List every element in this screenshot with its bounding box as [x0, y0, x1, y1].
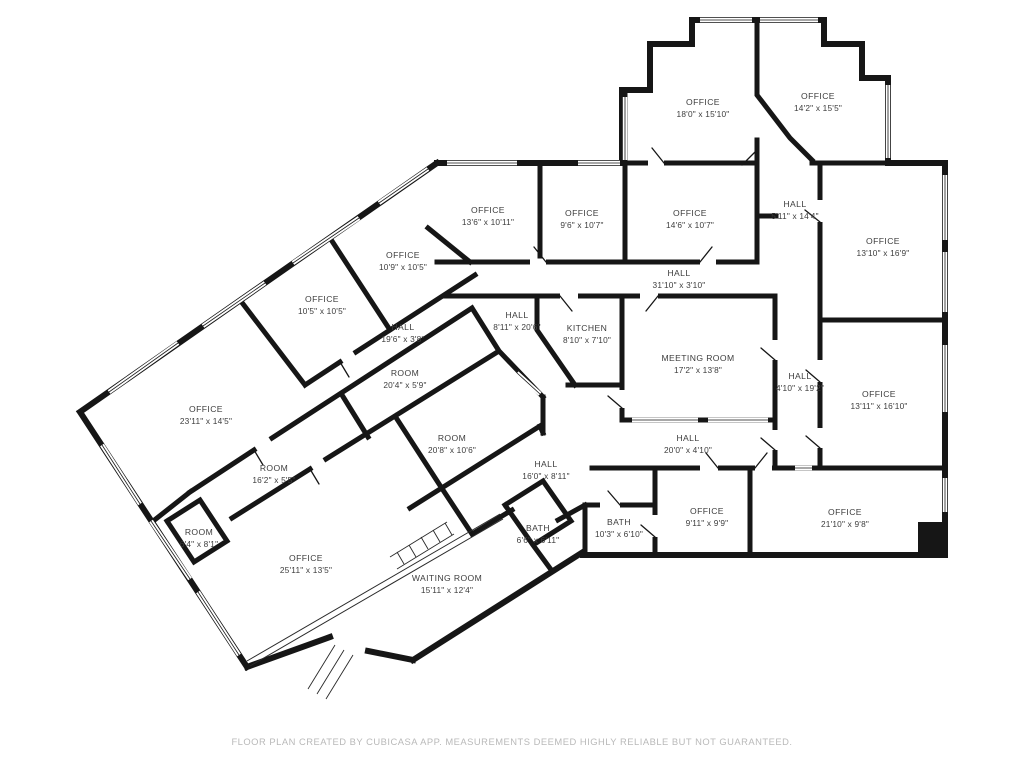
room-dimensions: 18'0" x 15'10": [677, 109, 730, 119]
room-dimensions: 17'2" x 13'8": [674, 365, 722, 375]
room-label: ROOM: [260, 463, 288, 473]
room-label: OFFICE: [690, 506, 724, 516]
room-dimensions: 21'10" x 9'8": [821, 519, 869, 529]
room-label: OFFICE: [305, 294, 339, 304]
room-label: OFFICE: [565, 208, 599, 218]
room-dimensions: 23'11" x 14'5": [180, 416, 232, 426]
room-dimensions: 13'11" x 16'10": [850, 401, 907, 411]
room-label: OFFICE: [386, 250, 420, 260]
room-label: KITCHEN: [567, 323, 608, 333]
room-label: HALL: [505, 310, 528, 320]
room-dimensions: 14'2" x 15'5": [794, 103, 842, 113]
room-label: WAITING ROOM: [412, 573, 482, 583]
room-label: OFFICE: [862, 389, 896, 399]
solid-wall-block: [918, 522, 945, 555]
room-dimensions: 10'9" x 10'5": [379, 262, 427, 272]
room-label: MEETING ROOM: [661, 353, 734, 363]
room-label: OFFICE: [471, 205, 505, 215]
room-label: ROOM: [391, 368, 419, 378]
room-dimensions: 16'0" x 8'11": [522, 471, 570, 481]
room-dimensions: 31'10" x 3'10": [653, 280, 706, 290]
room-label: OFFICE: [828, 507, 862, 517]
room-dimensions: 19'6" x 3'8": [381, 334, 424, 344]
room-dimensions: 13'6" x 10'11": [462, 217, 514, 227]
room-label: OFFICE: [801, 91, 835, 101]
room-dimensions: 4'10" x 19'2": [776, 383, 824, 393]
room-label: HALL: [667, 268, 690, 278]
room-label: HALL: [788, 371, 811, 381]
room-dimensions: 9'6" x 10'7": [560, 220, 603, 230]
room-label: HALL: [783, 199, 806, 209]
room-label: OFFICE: [686, 97, 720, 107]
room-label: ROOM: [438, 433, 466, 443]
room-dimensions: 10'5" x 10'5": [298, 306, 346, 316]
exterior-walls: [80, 20, 945, 667]
room-dimensions: 5'11" x 14'4": [771, 211, 819, 221]
room-dimensions: 20'4" x 5'9": [383, 380, 426, 390]
room-dimensions: 16'2" x 5'5": [252, 475, 295, 485]
room-dimensions: 6'6" x 6'11": [517, 535, 560, 545]
room-label: BATH: [607, 517, 631, 527]
floor-plan-disclaimer: FLOOR PLAN CREATED BY CUBICASA APP. MEAS…: [0, 736, 1024, 747]
room-label: OFFICE: [866, 236, 900, 246]
room-label: HALL: [534, 459, 557, 469]
room-dimensions: 25'11" x 13'5": [280, 565, 332, 575]
room-dimensions: 13'10" x 16'9": [857, 248, 910, 258]
room-dimensions: 10'3" x 6'10": [595, 529, 643, 539]
stairs-interior: [390, 522, 454, 569]
room-dimensions: 14'6" x 10'7": [666, 220, 714, 230]
room-dimensions: 8'11" x 20'6": [493, 322, 541, 332]
room-label: ROOM: [185, 527, 213, 537]
room-dimensions: 9'11" x 9'9": [686, 518, 729, 528]
room-label: BATH: [526, 523, 550, 533]
room-label: HALL: [676, 433, 699, 443]
floor-plan: OFFICE18'0" x 15'10"OFFICE14'2" x 15'5"O…: [0, 0, 1024, 768]
room-label: OFFICE: [673, 208, 707, 218]
floor-plan-drawing: OFFICE18'0" x 15'10"OFFICE14'2" x 15'5"O…: [0, 0, 1024, 768]
room-dimensions: 20'0" x 4'10": [664, 445, 712, 455]
room-label: HALL: [391, 322, 414, 332]
room-label: OFFICE: [189, 404, 223, 414]
room-dimensions: 20'8" x 10'6": [428, 445, 476, 455]
stairs-entrance: [308, 645, 353, 699]
room-label: OFFICE: [289, 553, 323, 563]
room-dimensions: 8'10" x 7'10": [563, 335, 611, 345]
room-dimensions: 15'11" x 12'4": [421, 585, 473, 595]
room-dimensions: 6'4" x 8'1": [180, 539, 218, 549]
